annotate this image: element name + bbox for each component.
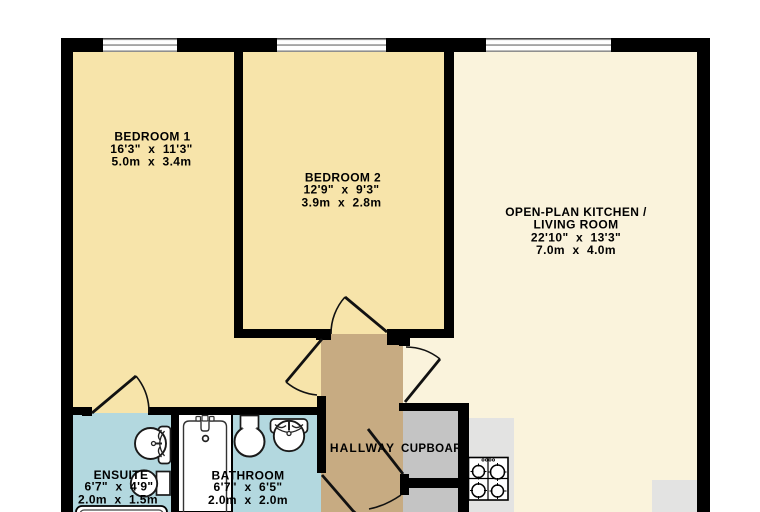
svg-text:12'9" x 9'3": 12'9" x 9'3" bbox=[303, 183, 379, 197]
svg-text:7.0m x 4.0m: 7.0m x 4.0m bbox=[536, 243, 616, 257]
svg-text:LIVING ROOM: LIVING ROOM bbox=[533, 218, 618, 232]
svg-text:6'7" x 4'9": 6'7" x 4'9" bbox=[85, 480, 154, 494]
svg-text:3.9m x 2.8m: 3.9m x 2.8m bbox=[302, 196, 382, 210]
svg-text:2.0m x 1.5m: 2.0m x 1.5m bbox=[78, 493, 158, 507]
svg-text:5.0m x 3.4m: 5.0m x 3.4m bbox=[112, 155, 192, 169]
svg-text:6'7" x 6'5": 6'7" x 6'5" bbox=[214, 480, 283, 494]
svg-text:2.0m x 2.0m: 2.0m x 2.0m bbox=[208, 493, 288, 507]
svg-text:HALLWAY: HALLWAY bbox=[330, 441, 395, 455]
